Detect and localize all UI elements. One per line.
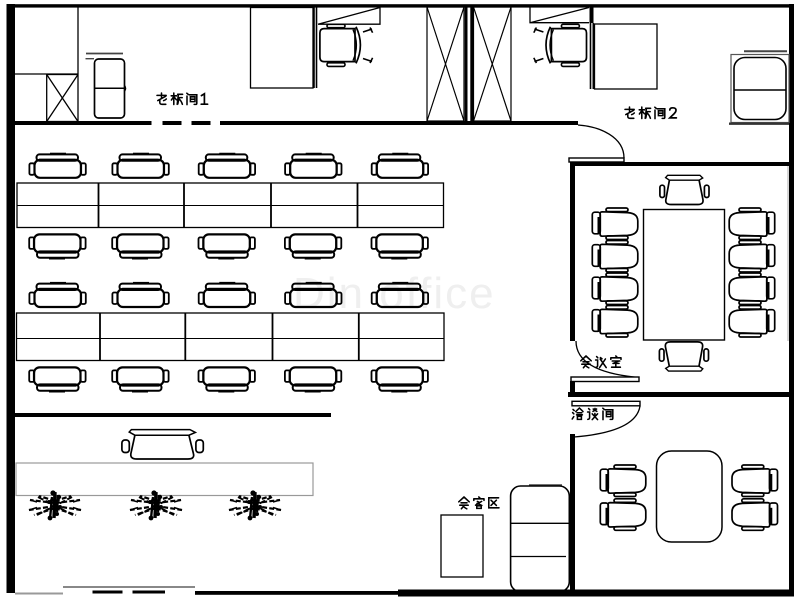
svg-text:Din office: Din office (293, 269, 496, 318)
